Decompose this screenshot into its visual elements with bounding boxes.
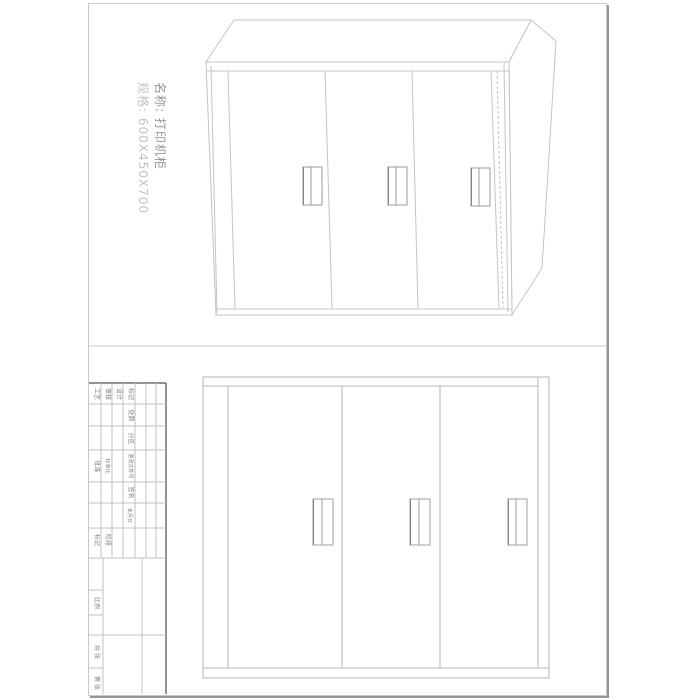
drawing-canvas (0, 0, 700, 700)
titleblock-label-jieduanbiaoji: 阶段标记 (91, 533, 113, 547)
titleblock-label-shenhe: 审核 (102, 386, 112, 402)
titleblock-label-sheji: 设计 (113, 386, 123, 402)
titleblock-label-biaozhunhua: 标准化 (102, 452, 112, 480)
titleblock-label-fenqu: 分区 (125, 429, 135, 448)
cabinet-top-face (206, 20, 531, 62)
cabinet-spec-label: 规格: 600X450X700 (134, 82, 151, 242)
front-view (203, 377, 549, 678)
cabinet-outline (203, 377, 549, 678)
door-handle-2 (410, 499, 430, 545)
titleblock-label-bili: 比例 (91, 593, 101, 613)
titleblock-label-qianming: 签名 (125, 484, 135, 501)
cabinet-side-face (509, 20, 556, 315)
door-handle-1 (303, 167, 322, 205)
titleblock-label-chushu: 处数 (125, 407, 135, 424)
titleblock-label-dizhang: 第 张 (91, 671, 101, 695)
titleblock-label-genggai: 更改文件号 (125, 452, 135, 480)
cabinet-name-label: 名称: 打印机柜 (151, 82, 168, 242)
door-handle-3 (471, 168, 490, 206)
door-handle-2 (388, 167, 407, 205)
titleblock-label-gongzhang: 共 张 (91, 639, 101, 665)
titleblock-label-pizhun: 批准 (91, 453, 101, 480)
perspective-view (206, 20, 556, 315)
sheet-annotation: 名称: 打印机柜 规格: 600X450X700 (134, 82, 168, 242)
cabinet-front-face (206, 62, 512, 315)
titleblock-label-nianyueri: 年月日 (124, 505, 134, 526)
titleblock-label-gongyi: 工艺 (91, 386, 101, 402)
door-handle-1 (313, 499, 333, 545)
titleblock-label-biaoji: 标记 (125, 386, 135, 402)
door-handle-3 (508, 499, 527, 545)
